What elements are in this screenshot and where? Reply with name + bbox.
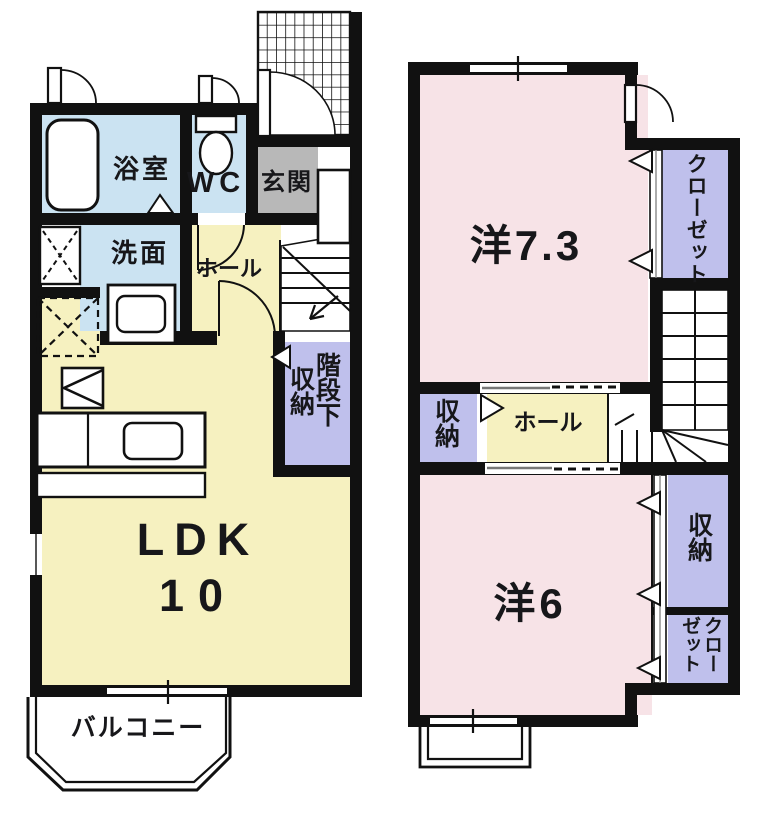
label-under-stairs-storage-line2: 収納: [287, 366, 314, 416]
label-wc: WC: [184, 168, 248, 199]
hall-ldk-opening: [217, 331, 273, 345]
bath-window-icon: [48, 68, 96, 103]
floor-plan-canvas: 浴室 WC 玄関 洗面 ホール 階段下 収納 LDK 10 バルコニー 洋7.3…: [0, 0, 774, 814]
label-balcony: バルコニー: [56, 715, 220, 742]
stairs-door-tick: [615, 414, 634, 425]
label-closet-lower-col-right: クロー: [701, 616, 721, 673]
label-ldk: LDK: [116, 516, 280, 564]
shoe-cabinet: [318, 170, 350, 243]
wc-window-icon: [199, 76, 239, 103]
label-hall-1f: ホール: [186, 257, 272, 280]
label-entrance: 玄関: [252, 170, 322, 195]
ldk-side-window-icon: [30, 532, 42, 577]
stairs-1f: [281, 234, 350, 331]
room6-sliding-door-icon: [485, 463, 620, 474]
washbasin-icon: [108, 285, 175, 343]
label-bath: 浴室: [98, 156, 186, 184]
label-washroom: 洗面: [96, 240, 184, 268]
bathtub-icon: [47, 120, 98, 210]
floor-plan-drawing: [0, 0, 774, 814]
room73-side-window-icon: [625, 85, 673, 122]
wc-door-opening: [198, 213, 245, 225]
label-closet-upper: クローゼット: [684, 153, 706, 285]
kitchen-stove-icon: [62, 368, 103, 408]
label-storage-right-2f: 収納: [685, 512, 712, 562]
room73-sliding-door-icon: [480, 383, 620, 393]
balcony-outline: [28, 697, 230, 790]
room6-bay-window-icon: [420, 709, 530, 767]
label-western-room-7-3: 洋7.3: [415, 224, 637, 269]
label-ldk-size: 10: [116, 572, 280, 620]
label-hall-2f: ホール: [492, 410, 604, 434]
kitchen-counter-icon: [37, 413, 205, 497]
label-western-room-6: 洋6: [428, 582, 632, 627]
label-storage-left-2f: 収納: [432, 398, 459, 448]
label-closet-lower-col-left: ゼット: [679, 616, 699, 673]
toilet-icon: [196, 116, 236, 174]
label-under-stairs-storage-line1: 階段下: [313, 352, 340, 427]
washing-machine-pan-icon: [40, 227, 80, 284]
